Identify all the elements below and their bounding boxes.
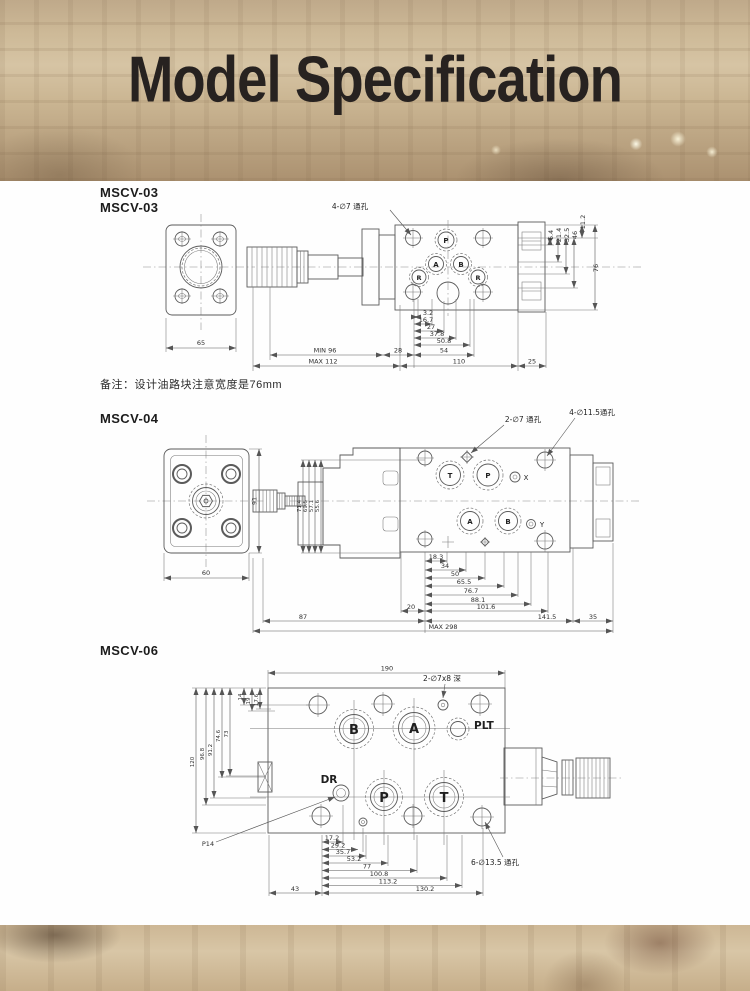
mounting-hole bbox=[468, 692, 492, 716]
dim-label-flange-width: 60 bbox=[202, 569, 210, 577]
port-label-b: B bbox=[349, 723, 359, 738]
port-r-right: R bbox=[469, 268, 488, 287]
callout-through-holes: 4-∅7 通孔 bbox=[332, 201, 369, 211]
mounting-hole bbox=[534, 530, 556, 552]
port-label-plt: PLT bbox=[474, 720, 495, 732]
port-label-r: R bbox=[416, 274, 421, 282]
leader-line bbox=[471, 425, 504, 453]
mounting-hole bbox=[470, 805, 494, 829]
dim-label: 141.5 bbox=[538, 613, 557, 621]
page-title: Model Specification bbox=[23, 42, 728, 117]
bolt-hole bbox=[173, 231, 191, 247]
dim-label: 14 bbox=[238, 693, 244, 700]
dim-label: 54 bbox=[440, 347, 448, 355]
port-x: X bbox=[510, 472, 529, 482]
port-plt: PLT bbox=[447, 718, 495, 740]
dim-label-min: MIN 96 bbox=[314, 347, 337, 355]
dim-label-flange-height: 91 bbox=[251, 497, 259, 505]
mscv06-knob-assembly bbox=[500, 748, 623, 805]
dim-label: 73 bbox=[224, 730, 230, 737]
dim-label: 87 bbox=[299, 613, 307, 621]
spec-page: Model Specification MSCV-03 MSCV-03 65 bbox=[0, 0, 750, 991]
leader-line bbox=[216, 797, 335, 842]
manifold-block bbox=[268, 688, 505, 833]
dim-label-max: MAX 298 bbox=[429, 623, 458, 631]
mscv03-drawing: 65 P A B R R 4-∅7 通孔 bbox=[95, 196, 660, 378]
port-label-a: A bbox=[467, 518, 473, 526]
mounting-hole bbox=[473, 228, 493, 248]
port-label-x: X bbox=[524, 474, 529, 482]
pilot-hole bbox=[438, 700, 448, 710]
port-label-r: R bbox=[475, 274, 480, 282]
bolt-hole bbox=[173, 465, 191, 483]
pin-hole bbox=[480, 537, 490, 547]
port-label-p: P bbox=[379, 791, 389, 806]
leader-line bbox=[485, 822, 503, 857]
port-label-b: B bbox=[458, 261, 463, 269]
leader-line bbox=[443, 684, 445, 698]
port-label-t: T bbox=[448, 472, 453, 480]
leader-line bbox=[547, 418, 575, 456]
dim-label: 43 bbox=[291, 885, 299, 893]
bolt-hole bbox=[173, 519, 191, 537]
bolt-hole bbox=[222, 465, 240, 483]
port-b: B bbox=[451, 254, 472, 275]
dim-label: 55.6 bbox=[315, 499, 321, 512]
bolt-hole bbox=[173, 288, 191, 304]
port-p: P bbox=[435, 229, 457, 251]
port-label-p: P bbox=[485, 472, 490, 480]
mounting-hole bbox=[403, 282, 423, 302]
callout-large-holes: 4-∅11.5通孔 bbox=[569, 407, 615, 417]
mounting-hole bbox=[401, 804, 425, 828]
port-label-p: P bbox=[443, 237, 448, 245]
port-b: B bbox=[495, 508, 521, 534]
manifold-face bbox=[400, 448, 570, 552]
dim-label: 110 bbox=[453, 358, 465, 366]
dim-label: 35 bbox=[589, 613, 597, 621]
mscv06-left-dims: 120 96.8 91.2 74.6 73 14 19 17.6 bbox=[190, 688, 311, 833]
dim-label: 113.2 bbox=[379, 878, 398, 886]
mounting-hole bbox=[416, 449, 434, 467]
dim-label-max: MAX 112 bbox=[309, 358, 338, 366]
bolt-hole bbox=[211, 288, 229, 304]
port-p: P bbox=[473, 460, 503, 490]
dim-label: 50 bbox=[451, 570, 459, 578]
bolt-hole bbox=[222, 519, 240, 537]
mounting-hole bbox=[309, 804, 333, 828]
dim-label: 17.6 bbox=[254, 693, 260, 706]
datum-cross bbox=[442, 536, 454, 548]
mounting-hole bbox=[403, 228, 423, 248]
dim-label: 96.8 bbox=[200, 747, 206, 760]
port-t: T bbox=[436, 461, 464, 489]
dim-label: 20 bbox=[407, 603, 415, 611]
dim-label: 18.3 bbox=[429, 553, 443, 561]
mscv04-front-view: 91 60 bbox=[147, 435, 265, 581]
port-y: Y bbox=[527, 520, 545, 530]
mscv06-face: B A PLT DR P T bbox=[258, 692, 495, 829]
dim-label-top-width: 190 bbox=[381, 665, 393, 673]
mscv03-bottom-dims: 3.2 16.7 27 37.8 50.8 54 MIN 96 28 MAX 1… bbox=[253, 287, 546, 371]
dim-label: 11.2 bbox=[579, 215, 587, 229]
footer-photo bbox=[0, 925, 750, 991]
mscv03-front-view: 65 bbox=[143, 214, 255, 352]
dim-label: 130.2 bbox=[416, 885, 435, 893]
small-hole bbox=[359, 818, 367, 826]
dim-label: 28 bbox=[394, 347, 402, 355]
dim-label: 101.6 bbox=[477, 603, 496, 611]
design-note: 备注：设计油路块注意宽度是76mm bbox=[100, 376, 282, 392]
dim-label: 50.8 bbox=[437, 337, 451, 345]
port-a: A bbox=[426, 254, 447, 275]
mounting-hole bbox=[371, 692, 395, 716]
port-label-y: Y bbox=[539, 521, 545, 529]
port-r-left: R bbox=[410, 268, 429, 287]
mscv04-bottom-dims: 18.3 34 50 65.5 76.7 88.1 101.6 20 87 14… bbox=[253, 543, 613, 633]
dim-label: 76 bbox=[592, 264, 600, 272]
dim-label: 32.5 bbox=[563, 228, 571, 242]
dim-label: 53.2 bbox=[347, 855, 361, 863]
port-a: A bbox=[457, 508, 483, 534]
dim-label: 25 bbox=[528, 358, 536, 366]
dim-label: 46 bbox=[571, 231, 579, 239]
port-label-a: A bbox=[433, 261, 439, 269]
dim-label: 74.6 bbox=[216, 729, 222, 742]
mscv04-side-view: 71.4 69.5 57.1 55.6 bbox=[253, 448, 425, 558]
port-label-a: A bbox=[409, 722, 419, 737]
dim-label: 34 bbox=[441, 562, 449, 570]
dim-label: 65.5 bbox=[457, 578, 471, 586]
port-label-dr: DR bbox=[321, 774, 338, 786]
mscv04-drawing: 91 60 71.4 69.5 57.1 55.6 bbox=[95, 405, 660, 648]
dim-label: 6.4 bbox=[547, 230, 555, 240]
mscv03-right-dims: 6.4 21.4 32.5 46 11.2 76 bbox=[518, 215, 600, 310]
port-label-t: T bbox=[440, 791, 449, 806]
bolt-hole bbox=[211, 231, 229, 247]
mscv06-drawing: 190 120 96.8 91.2 74.6 73 14 19 17.6 bbox=[95, 650, 700, 925]
callout-p14: P14 bbox=[202, 840, 214, 848]
leader-line bbox=[390, 210, 411, 235]
dim-label: 120 bbox=[190, 756, 196, 767]
dim-label: 91.2 bbox=[208, 744, 214, 756]
mscv04-top-view: T P X A B Y 2-∅7 通孔 4-∅11.5通孔 bbox=[290, 407, 640, 552]
mounting-hole bbox=[306, 693, 330, 717]
dim-label: 19 bbox=[246, 697, 252, 704]
port-label-b: B bbox=[505, 518, 510, 526]
mounting-hole bbox=[416, 530, 434, 548]
mounting-hole bbox=[534, 449, 556, 471]
mscv06-block: 190 bbox=[250, 665, 510, 846]
dim-label-flange-width: 65 bbox=[197, 339, 205, 347]
dim-label: 76.7 bbox=[464, 587, 478, 595]
mscv06-bottom-dims: 17.2 29.2 35.7 53.2 77 100.8 113.2 43 13… bbox=[269, 805, 483, 896]
dim-label: 21.4 bbox=[555, 228, 563, 242]
callout-large-holes: 6-∅13.5 通孔 bbox=[471, 857, 520, 867]
callout-small-holes: 2-∅7x8 深 bbox=[423, 674, 461, 683]
callout-small-holes: 2-∅7 通孔 bbox=[505, 414, 542, 424]
